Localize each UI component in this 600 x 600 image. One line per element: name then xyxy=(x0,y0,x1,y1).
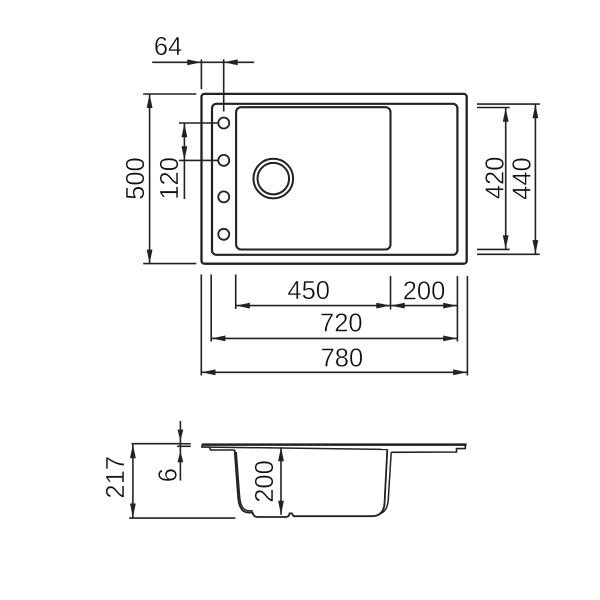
svg-text:6: 6 xyxy=(154,468,182,482)
svg-text:450: 450 xyxy=(287,277,330,305)
svg-text:500: 500 xyxy=(122,157,150,200)
svg-text:200: 200 xyxy=(403,277,446,305)
svg-text:200: 200 xyxy=(251,460,279,503)
svg-text:440: 440 xyxy=(508,157,536,200)
svg-text:64: 64 xyxy=(154,33,182,61)
svg-text:420: 420 xyxy=(481,157,509,200)
svg-text:217: 217 xyxy=(102,456,130,499)
svg-text:780: 780 xyxy=(321,344,364,372)
svg-text:720: 720 xyxy=(320,309,363,337)
svg-text:120: 120 xyxy=(156,157,184,200)
